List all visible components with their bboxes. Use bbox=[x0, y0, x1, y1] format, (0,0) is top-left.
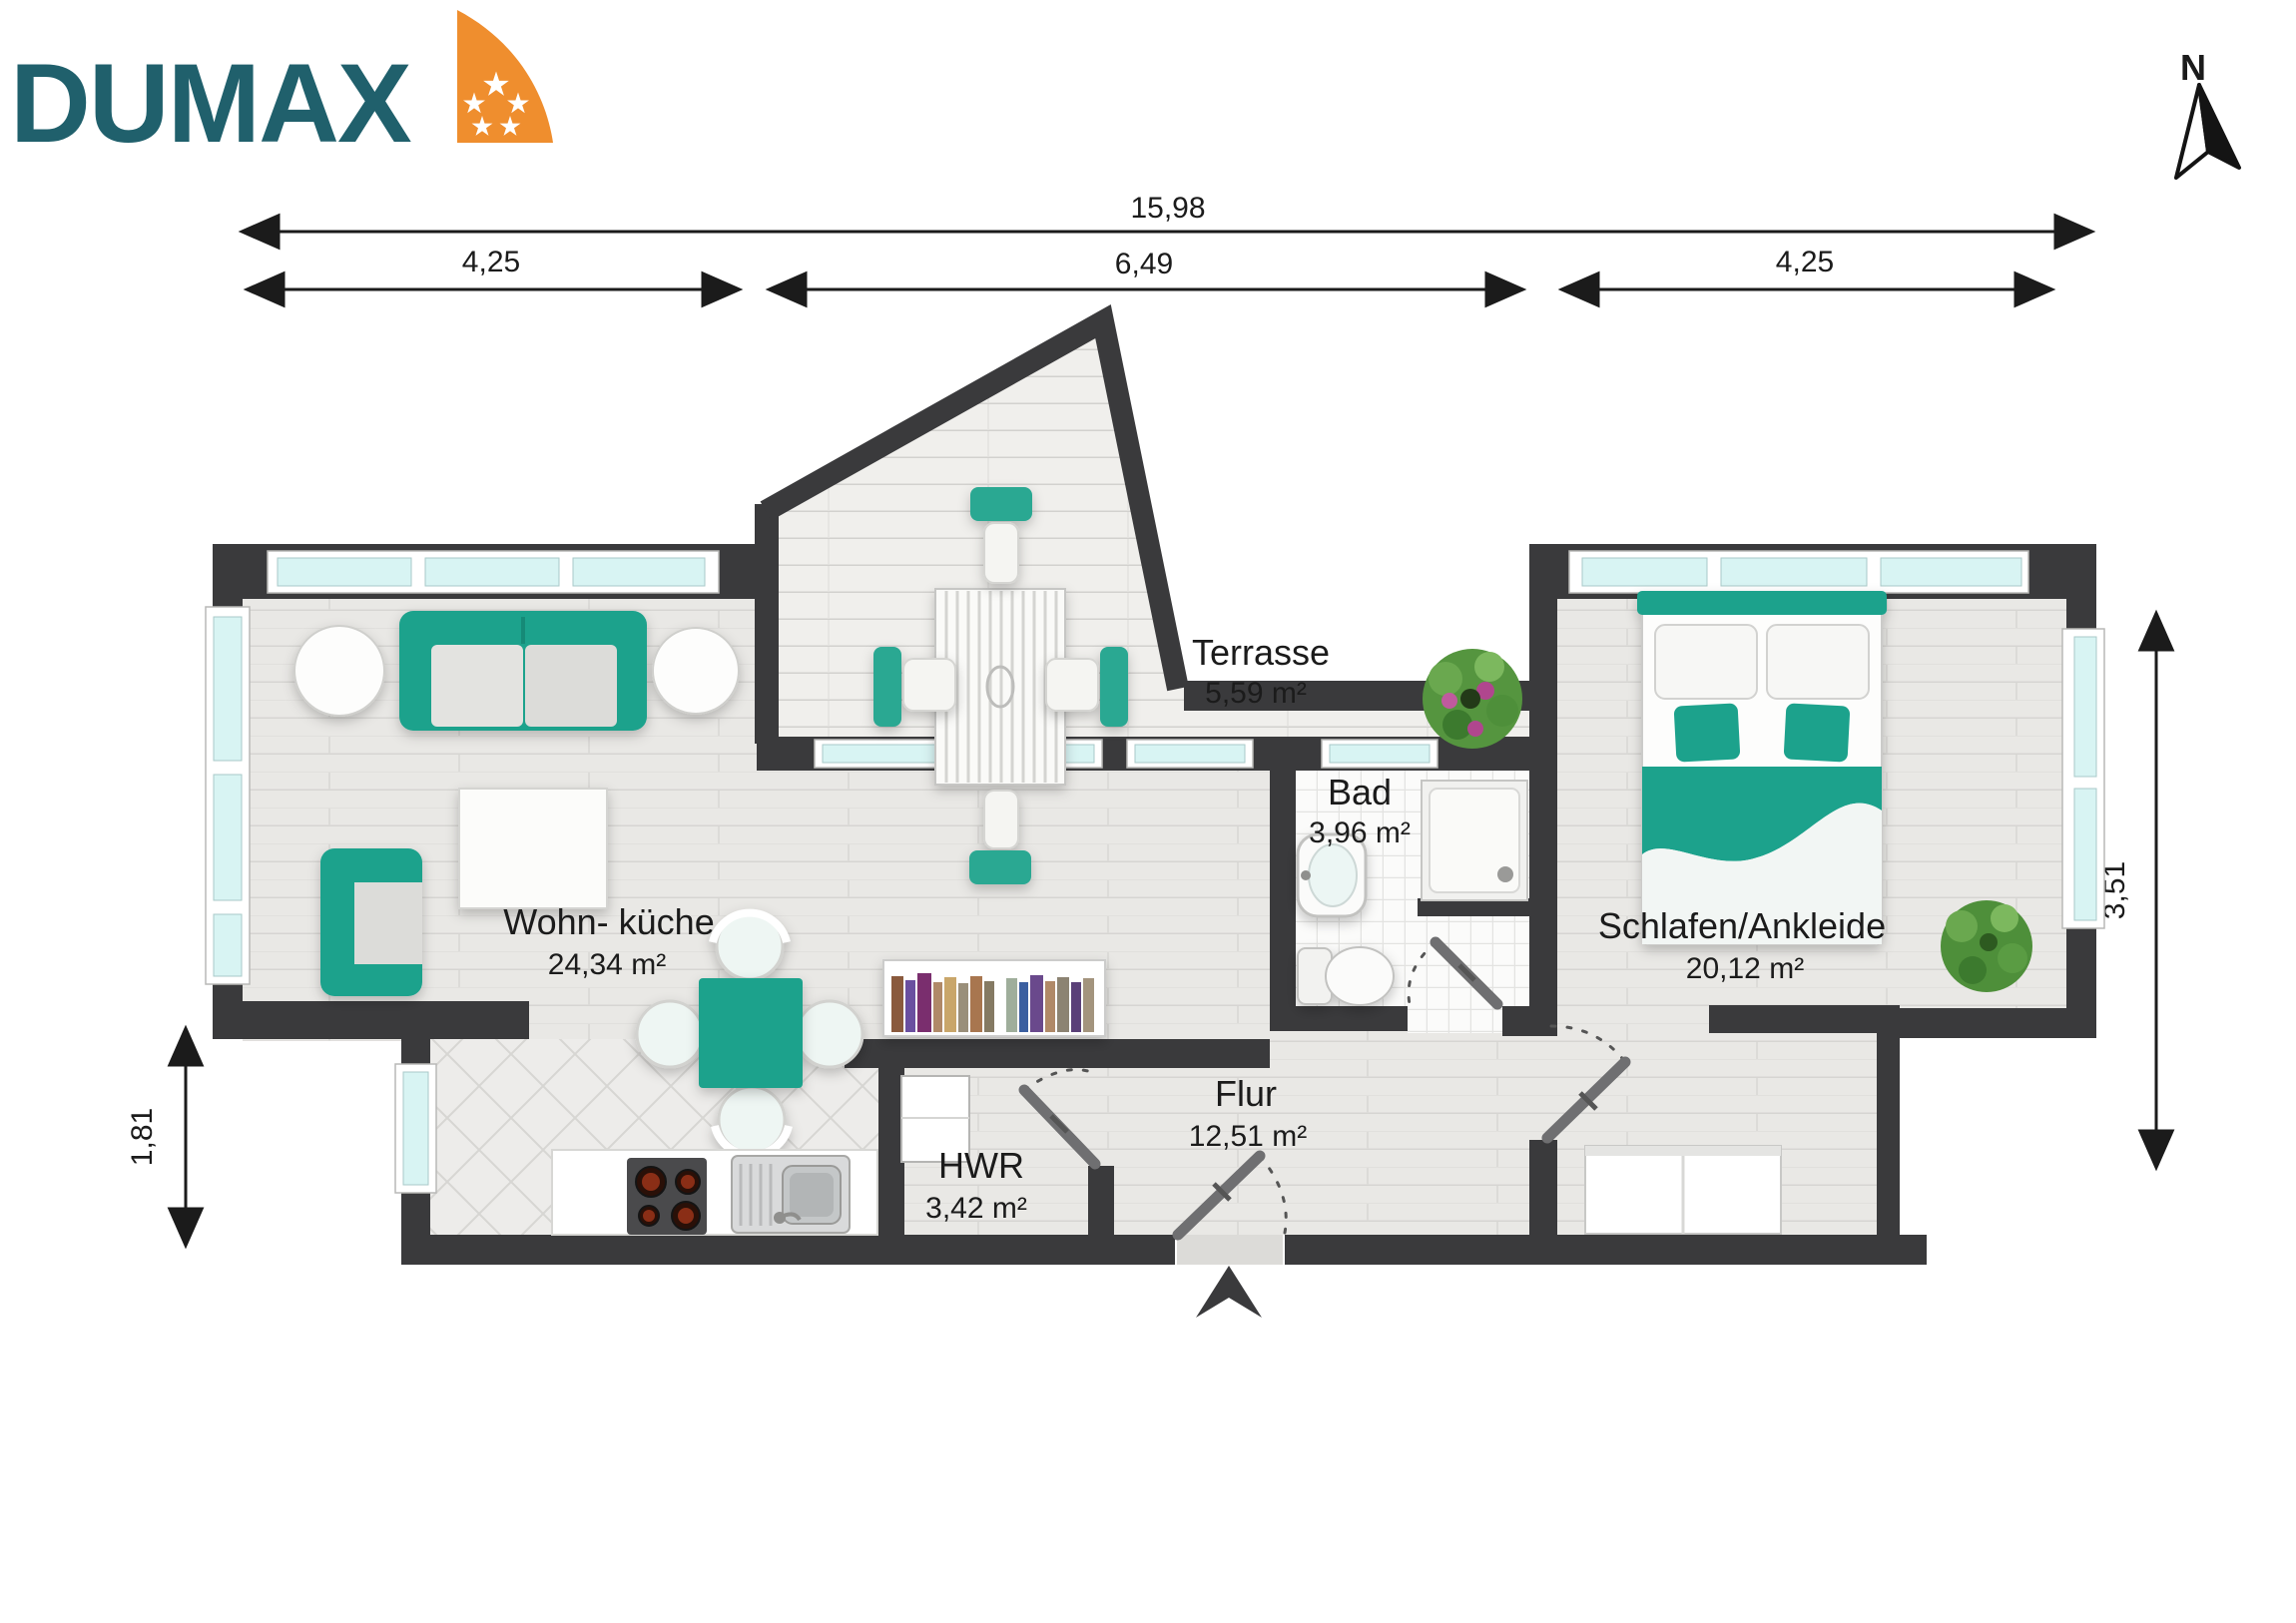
wardrobe bbox=[1585, 1146, 1781, 1234]
cooktop bbox=[627, 1158, 707, 1235]
terrace-flower-pot bbox=[1423, 649, 1522, 749]
living-name: Wohn- küche bbox=[503, 901, 714, 942]
dim-width-middle: 6,49 bbox=[1115, 248, 1173, 280]
hall-name: Flur bbox=[1215, 1073, 1277, 1114]
bath-window bbox=[1322, 740, 1437, 768]
kitchen-sink bbox=[732, 1156, 850, 1233]
bedroom-top-window bbox=[1569, 551, 2028, 593]
dumax-logo: DUMAX bbox=[10, 10, 553, 166]
dim-height-left: 1,81 bbox=[126, 1108, 159, 1166]
bedroom-name: Schlafen/Ankleide bbox=[1598, 905, 1886, 946]
side-table-left bbox=[294, 626, 384, 716]
bedroom-right-window bbox=[2062, 629, 2104, 928]
double-bed bbox=[1637, 591, 1887, 944]
sofa bbox=[399, 611, 647, 731]
bookshelf bbox=[883, 960, 1105, 1036]
side-table-right bbox=[653, 628, 739, 714]
bath-area: 3,96 m² bbox=[1309, 816, 1411, 849]
bath-name: Bad bbox=[1328, 772, 1392, 812]
dim-total-width: 15,98 bbox=[1130, 192, 1205, 225]
books bbox=[891, 973, 1094, 1032]
north-compass: N bbox=[2176, 47, 2239, 178]
terrace-name: Terrasse bbox=[1192, 632, 1330, 673]
entrance-arrow-icon bbox=[1196, 1266, 1262, 1318]
dining-table bbox=[699, 978, 803, 1088]
kitchen-left-window bbox=[395, 1064, 436, 1193]
bedroom-area: 20,12 m² bbox=[1686, 952, 1804, 985]
dim-width-right: 4,25 bbox=[1776, 246, 1834, 278]
hall-area: 12,51 m² bbox=[1189, 1120, 1307, 1153]
shower bbox=[1422, 781, 1527, 900]
kitchen-counter bbox=[552, 1150, 877, 1235]
dim-width-left: 4,25 bbox=[462, 246, 520, 278]
living-area: 24,34 m² bbox=[548, 948, 666, 981]
coffee-table bbox=[459, 789, 607, 908]
utility-name: HWR bbox=[938, 1145, 1024, 1186]
logo-wordmark: DUMAX bbox=[10, 41, 411, 166]
bedroom-plant bbox=[1941, 900, 2032, 992]
floorplan-page: DUMAX N 15,98 4,25 6,49 4,25 3,51 1,81 bbox=[0, 0, 2296, 1623]
utility-area: 3,42 m² bbox=[925, 1192, 1027, 1225]
floorplan-canvas: DUMAX N 15,98 4,25 6,49 4,25 3,51 1,81 bbox=[0, 0, 2296, 1623]
armchair bbox=[320, 848, 422, 996]
compass-n-label: N bbox=[2180, 47, 2206, 88]
entrance-threshold bbox=[1177, 1235, 1283, 1265]
toilet bbox=[1298, 947, 1394, 1005]
terrace-area: 5,59 m² bbox=[1205, 677, 1307, 710]
living-left-window bbox=[206, 607, 250, 984]
living-top-window bbox=[268, 551, 719, 593]
logo-sail-icon bbox=[457, 10, 553, 143]
